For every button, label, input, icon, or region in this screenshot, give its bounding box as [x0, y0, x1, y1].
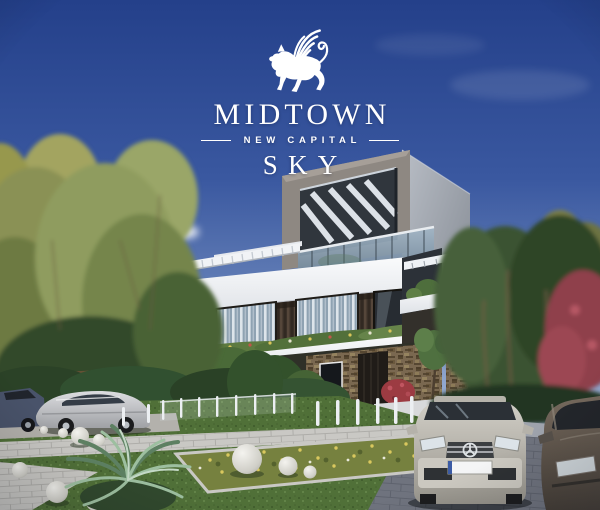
winged-lion-logo-icon: [256, 28, 344, 98]
logo-tagline: SKY: [252, 152, 347, 179]
logo-subtitle: NEW CAPITAL: [239, 135, 361, 146]
logo-wordmark: MIDTOWN: [209, 100, 390, 130]
render-image: MIDTOWN NEW CAPITAL SKY: [0, 0, 600, 510]
right-dash: [369, 140, 399, 142]
logo-subtitle-row: NEW CAPITAL: [201, 135, 399, 146]
project-logo: MIDTOWN NEW CAPITAL SKY: [0, 28, 600, 179]
left-dash: [201, 140, 231, 142]
